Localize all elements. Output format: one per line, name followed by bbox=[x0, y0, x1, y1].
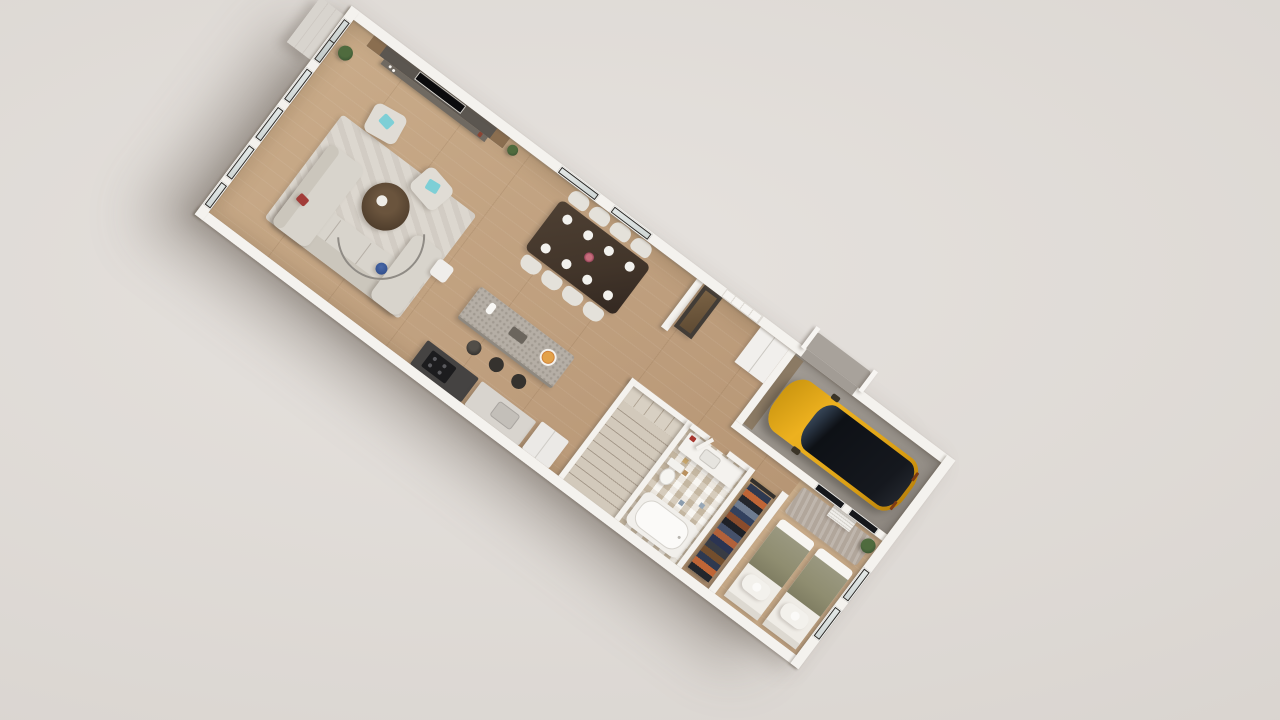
floor-plan bbox=[195, 6, 956, 669]
render-viewport[interactable] bbox=[0, 0, 1280, 720]
